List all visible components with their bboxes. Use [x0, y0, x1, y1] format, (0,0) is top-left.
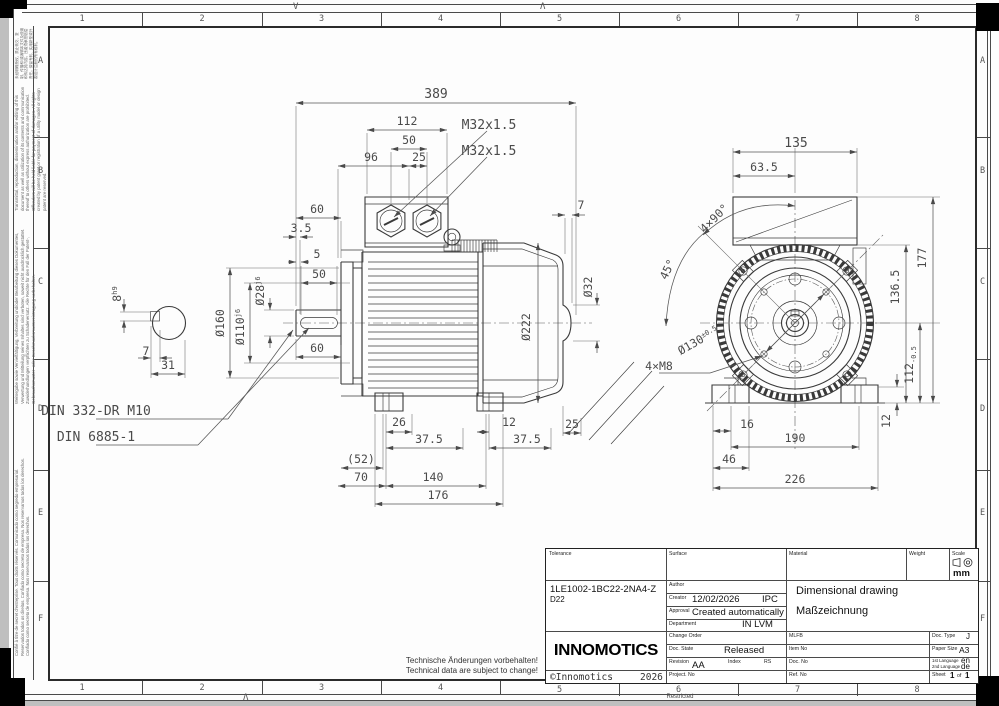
innomotics-logo: INNOMOTICS [543, 633, 669, 669]
label-surface: Surface [669, 551, 687, 557]
creator-date: 12/02/2026 [692, 594, 740, 605]
callout-gland-2: M32x1.5 [462, 144, 517, 159]
label-tolerance: Tolerance [549, 551, 572, 557]
dim-60-bottom: 60 [310, 341, 324, 355]
motor-side-view: 389 112 50 96 25 M32x1.5 M32x1.5 60 3.5 … [41, 87, 664, 507]
dim-offset-angle: 45° [657, 257, 679, 282]
label-lang1: 1st Language [932, 658, 959, 663]
sheet-of: of [957, 673, 961, 679]
label-author: Author [669, 582, 684, 588]
label-doc-state: Doc. State [669, 646, 693, 652]
label-revision: Revision [669, 659, 689, 665]
dim-overhang: (52) [347, 452, 375, 466]
change-notice-en: Technical data are subject to change! [333, 666, 538, 676]
dim-bolt-offset: 26 [392, 415, 406, 429]
dim-flange-dia: Ø160 [213, 309, 227, 337]
dim-box-width: 112 [397, 114, 418, 128]
dim-96: 96 [364, 150, 378, 164]
keyway-notch [151, 312, 160, 322]
label-creator: Creator [669, 595, 686, 601]
dim-key-length: 50 [312, 267, 326, 281]
copyright: ©Innomotics [550, 672, 613, 683]
dim-foot-span: 176 [428, 488, 449, 502]
doc-title-en: Dimensional drawing [796, 585, 898, 597]
change-notice-de: Technische Änderungen vorbehalten! [333, 656, 538, 666]
label-change-order: Change Order [669, 633, 702, 639]
paper-size-value: A3 [959, 645, 969, 655]
title-block: Tolerance Surface Material Weight Scale … [545, 548, 979, 684]
callout-gland-1: M32x1.5 [462, 118, 517, 133]
label-scale: Scale [952, 551, 965, 557]
dim-base-width: 226 [785, 472, 806, 486]
dim-front-pitch: 70 [354, 470, 368, 484]
dim-foot-pitch-end: 190 [785, 431, 806, 445]
dim-pitch-b: 37.5 [513, 432, 541, 446]
dim-3-5: 3.5 [291, 221, 312, 235]
dim-stub-dia: Ø32 [581, 277, 595, 298]
label-material: Material [789, 551, 807, 557]
approval-value: Created automatically [692, 607, 784, 618]
callout-center-hole: DIN 332-DR M10 [41, 404, 151, 419]
dim-section-width: 31 [161, 358, 175, 372]
sheet-total: 1 [965, 671, 969, 680]
dim-25: 25 [412, 150, 426, 164]
label-department: Department [669, 621, 696, 627]
sheet-no: 1 [950, 671, 954, 680]
drawing-sheet-stage: 1 2 3 4 5 6 7 8 1 2 3 4 5 6 7 8 A B C D … [0, 0, 999, 706]
label-index: Index [728, 659, 741, 665]
label-doc-type: Doc. Type [932, 633, 955, 639]
restriction-label: Restricted [630, 694, 730, 700]
label-project-no: Project. No [669, 672, 695, 678]
dim-60-top: 60 [310, 202, 324, 216]
dim-frame-dia: Ø222 [519, 313, 533, 341]
index-value: RS [764, 659, 771, 665]
dim-gland-spacing: 50 [402, 133, 416, 147]
revision-value: AA [692, 660, 705, 671]
doc-state-value: Released [724, 645, 764, 656]
shaft-key-section-view: 8h9 7 31 [110, 286, 186, 378]
creator-org: IPC [762, 594, 778, 605]
dim-pitch-a: 37.5 [415, 432, 443, 446]
callout-key-standard: DIN 6885-1 [57, 430, 135, 445]
dim-total-height: 177 [915, 248, 929, 269]
dim-total-length: 389 [424, 87, 447, 102]
dim-box-height: 136.5 [888, 270, 902, 305]
callout-tapped-holes: 4×M8 [645, 359, 673, 373]
department-value: IN LVM [742, 619, 773, 630]
label-doc-no: Doc. No [789, 659, 808, 665]
dim-box-width-end: 135 [784, 136, 807, 151]
dim-5: 5 [314, 247, 321, 261]
dim-shaft-dia: Ø28j6 [253, 276, 267, 305]
label-lang2: 2nd Language [932, 664, 960, 669]
callout-bolt-circle: Ø130±0.5 [675, 323, 721, 357]
dim-shaft-height: 112-0.5 [902, 346, 918, 384]
label-mlfb: MLFB [789, 633, 803, 639]
copyright-year: 2026 [640, 672, 663, 683]
dim-stub: 7 [578, 198, 585, 212]
label-paper-size: Paper Size [932, 646, 957, 652]
dim-spigot-dia: Ø110j6 [233, 309, 247, 345]
lang2-value: de [961, 662, 970, 671]
dim-foot-width: 46 [722, 452, 736, 466]
motor-end-view: 135 63.5 4×90° 45° Ø130±0.5 4×M8 177 136… [645, 136, 940, 491]
doc-type-value: J [966, 632, 970, 641]
dim-box-half: 63.5 [750, 160, 778, 174]
change-notice: Technische Änderungen vorbehalten! Techn… [333, 656, 538, 677]
label-ref-no: Ref. No [789, 672, 807, 678]
label-approval: Approval [669, 608, 689, 614]
dim-key-depth: 7 [143, 344, 150, 358]
part-number: 1LE1002-1BC22-2NA4-Z [550, 584, 656, 595]
scale-unit: mm [953, 568, 970, 579]
label-sheet: Sheet [932, 672, 946, 678]
label-weight: Weight [909, 551, 925, 557]
doc-title-de: Maßzeichnung [796, 605, 868, 617]
dim-foot-pitch: 140 [423, 470, 444, 484]
part-suffix: D22 [550, 595, 565, 604]
dim-foot-offset: 25 [565, 417, 579, 431]
projection-symbol-icon [952, 558, 974, 567]
label-item-no: Item No [789, 646, 807, 652]
dim-key-width: 8h9 [110, 286, 124, 301]
dim-bolt-edge: 16 [740, 417, 754, 431]
dim-foot-height: 12 [879, 414, 893, 428]
dim-rear-offset: 12 [502, 415, 516, 429]
